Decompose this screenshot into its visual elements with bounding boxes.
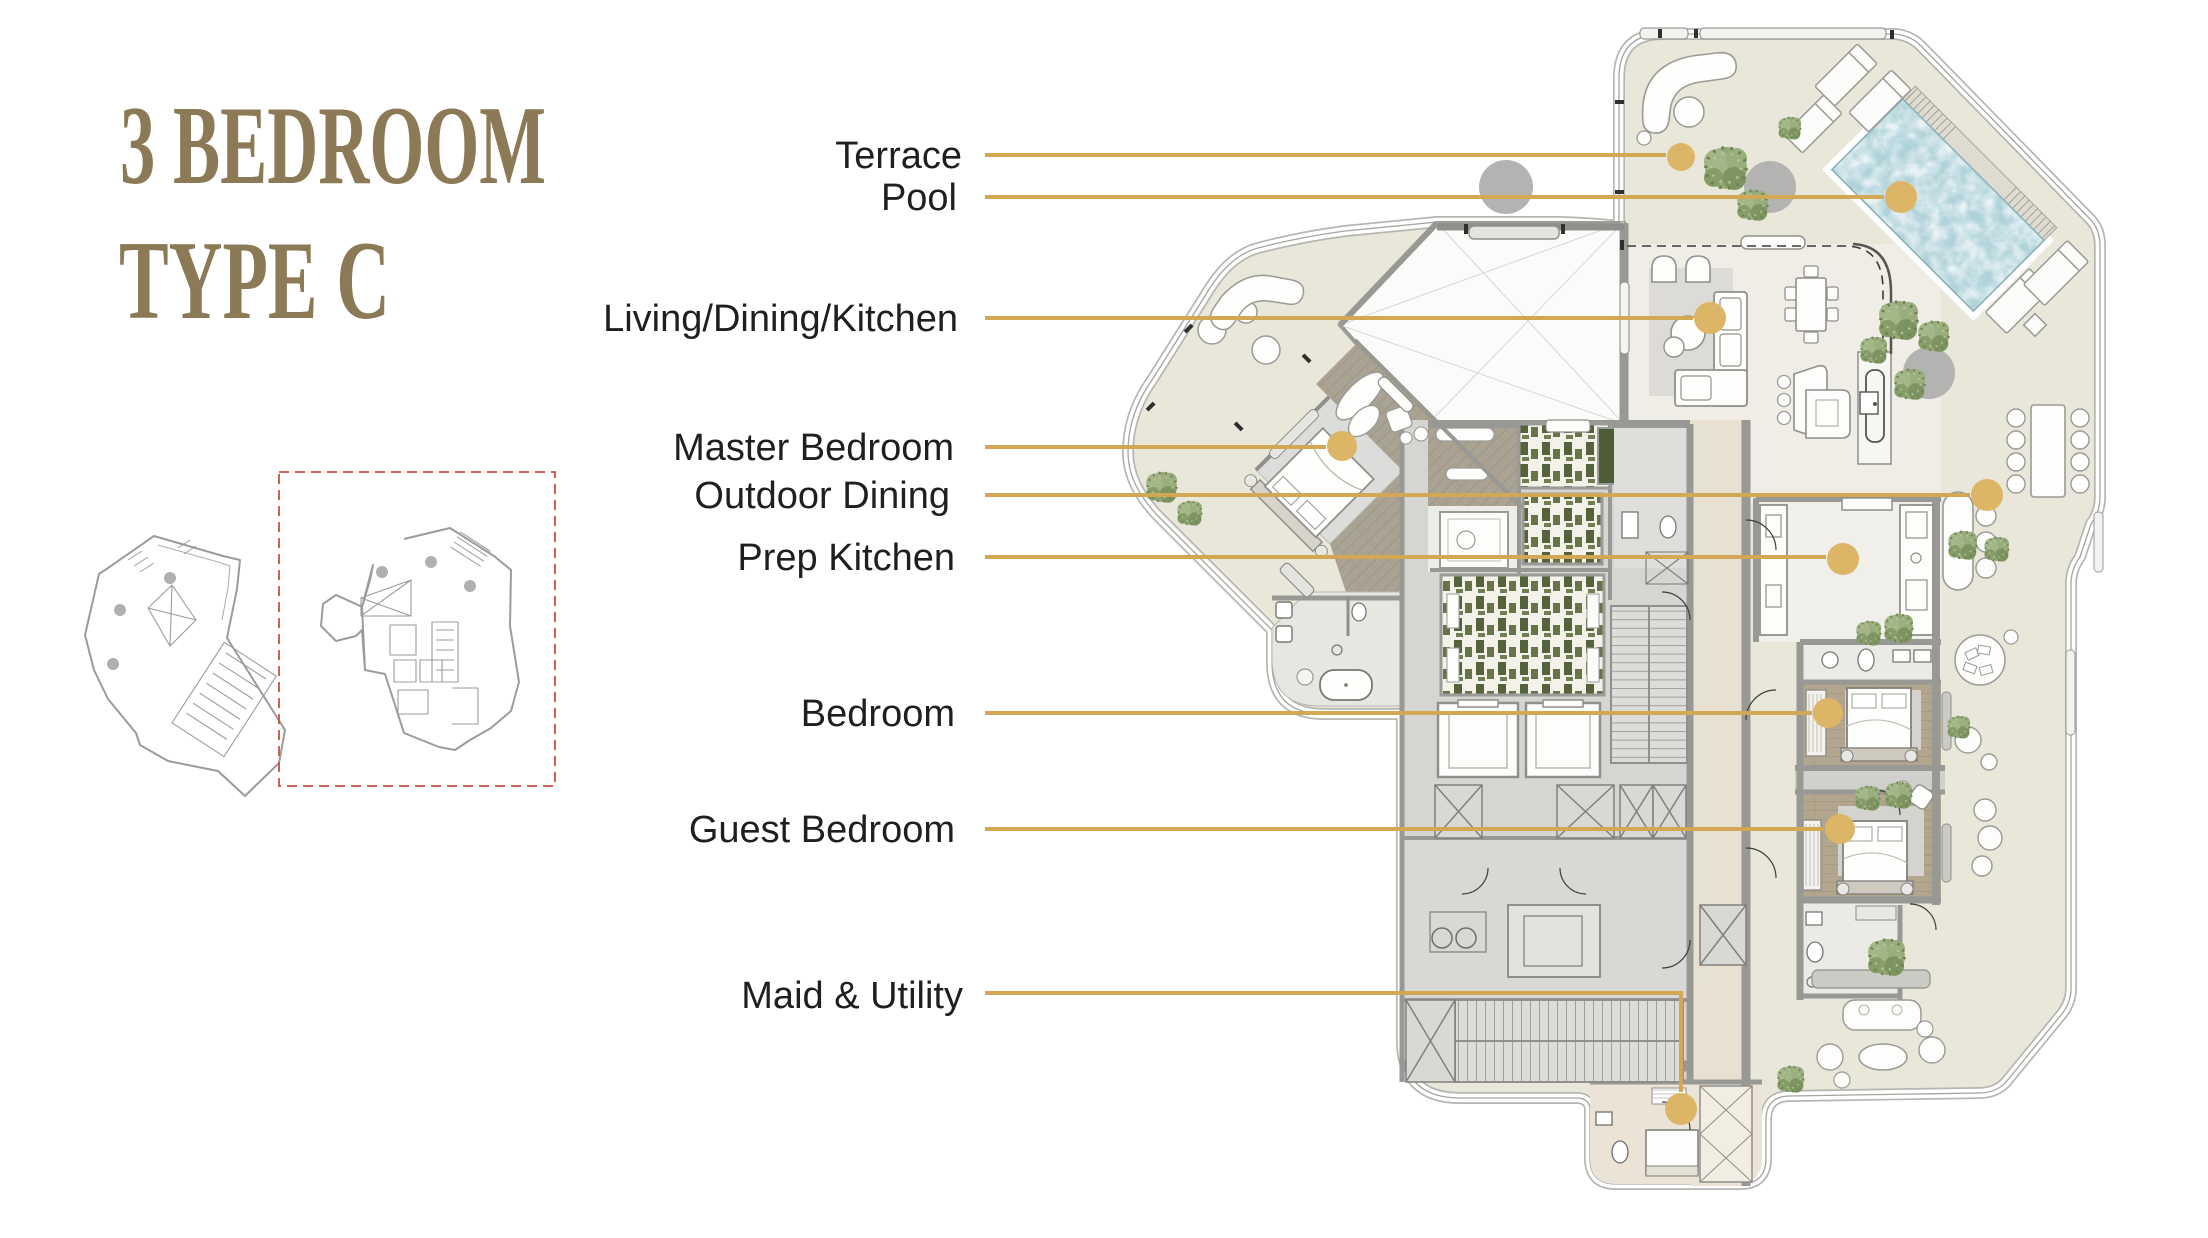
svg-text:Pool: Pool [881,177,957,219]
svg-text:3 BEDROOM: 3 BEDROOM [120,84,546,208]
svg-text:TYPE C: TYPE C [119,219,390,343]
svg-text:Guest Bedroom: Guest Bedroom [689,809,955,851]
svg-text:Terrace: Terrace [835,135,962,177]
svg-text:Outdoor Dining: Outdoor Dining [694,475,950,517]
svg-text:Maid & Utility: Maid & Utility [741,975,963,1017]
svg-text:Prep Kitchen: Prep Kitchen [737,537,955,579]
svg-text:Living/Dining/Kitchen: Living/Dining/Kitchen [603,298,958,340]
svg-text:Bedroom: Bedroom [801,693,955,735]
svg-text:Master Bedroom: Master Bedroom [673,427,954,469]
